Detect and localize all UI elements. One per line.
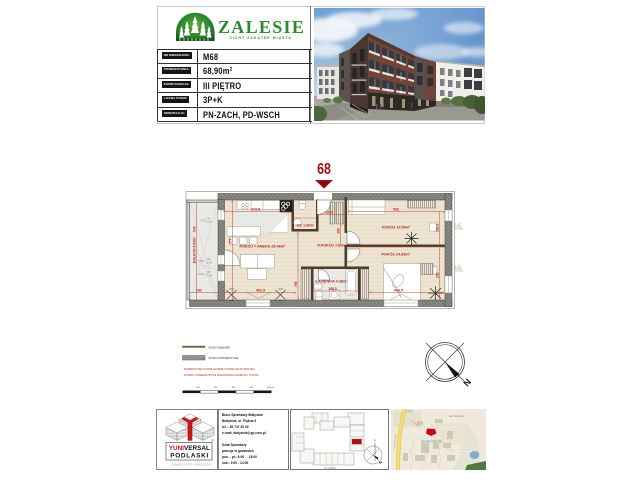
svg-text:300: 300	[232, 387, 236, 389]
svg-text:WPN: WPN	[407, 409, 413, 412]
svg-text:448.5: 448.5	[394, 289, 403, 293]
svg-text:491.5: 491.5	[256, 289, 265, 293]
svg-text:D87: D87	[199, 259, 205, 263]
svg-text:P.POKÓJ 7.60m²: P.POKÓJ 7.60m²	[318, 243, 348, 248]
svg-text:0.35a: 0.35a	[455, 269, 463, 273]
svg-text:2.35: 2.35	[206, 261, 212, 265]
svg-text:N: N	[378, 460, 383, 465]
svg-text:ŁAZIENKA 4.38m²: ŁAZIENKA 4.38m²	[316, 280, 349, 284]
svg-text:500cm: 500cm	[267, 387, 274, 389]
svg-text:BALKON 6.53m²: BALKON 6.53m²	[193, 236, 197, 263]
svg-text:POKÓJ 14.93m²: POKÓJ 14.93m²	[382, 252, 411, 257]
svg-text:268.5: 268.5	[329, 287, 337, 291]
svg-text:200: 200	[214, 387, 218, 389]
svg-text:PODLASKI: PODLASKI	[170, 452, 209, 459]
svg-text:POKÓJ 14.56m²: POKÓJ 14.56m²	[382, 225, 411, 230]
svg-text:Ignatki-Osiedle: Ignatki-Osiedle	[421, 439, 442, 443]
svg-text:DEWELOPER MIESZKAŃ: DEWELOPER MIESZKAŃ	[172, 462, 212, 466]
svg-text:D911: D911	[198, 272, 205, 276]
svg-text:ŚCIANY KONSTRUKCYJNE: ŚCIANY KONSTRUKCYJNE	[209, 357, 239, 360]
svg-text:286: 286	[337, 228, 341, 234]
svg-text:ŚCIANY DZIAŁOWE: ŚCIANY DZIAŁOWE	[209, 346, 231, 349]
svg-text:POKÓJ + ANEKS 25.46m²: POKÓJ + ANEKS 25.46m²	[240, 244, 287, 249]
svg-text:150: 150	[196, 289, 202, 293]
svg-text:400: 400	[249, 387, 253, 389]
svg-text:1.50: 1.50	[206, 220, 212, 224]
svg-text:542: 542	[393, 208, 399, 212]
svg-text:265.5: 265.5	[436, 224, 440, 232]
svg-text:575: 575	[229, 238, 233, 244]
svg-text:292: 292	[436, 272, 440, 278]
svg-text:Las Solnicki: Las Solnicki	[449, 414, 464, 418]
svg-text:290.5: 290.5	[325, 211, 333, 215]
svg-text:YUNIVERSAL: YUNIVERSAL	[169, 444, 210, 451]
svg-text:100: 100	[196, 387, 200, 389]
svg-text:ul. LEŚNA: ul. LEŚNA	[324, 465, 336, 470]
svg-text:2.35: 2.35	[206, 274, 212, 278]
svg-text:373.5: 373.5	[251, 208, 260, 212]
svg-text:N: N	[461, 377, 473, 389]
svg-text:- POWIERZCHNIE LICZONE ZGODNIE: - POWIERZCHNIE LICZONE ZGODNIE Z NORMĄ I…	[183, 368, 256, 371]
svg-text:WC 1.93m²: WC 1.93m²	[297, 224, 315, 228]
svg-text:- WYMIARY POWIERZCHNI NIE UWZG: - WYMIARY POWIERZCHNI NIE UWZGLĘDNIAJĄ G…	[183, 374, 260, 377]
svg-text:578: 578	[193, 226, 197, 232]
svg-text:0.34a: 0.34a	[455, 227, 463, 231]
svg-text:769: 769	[294, 281, 298, 287]
